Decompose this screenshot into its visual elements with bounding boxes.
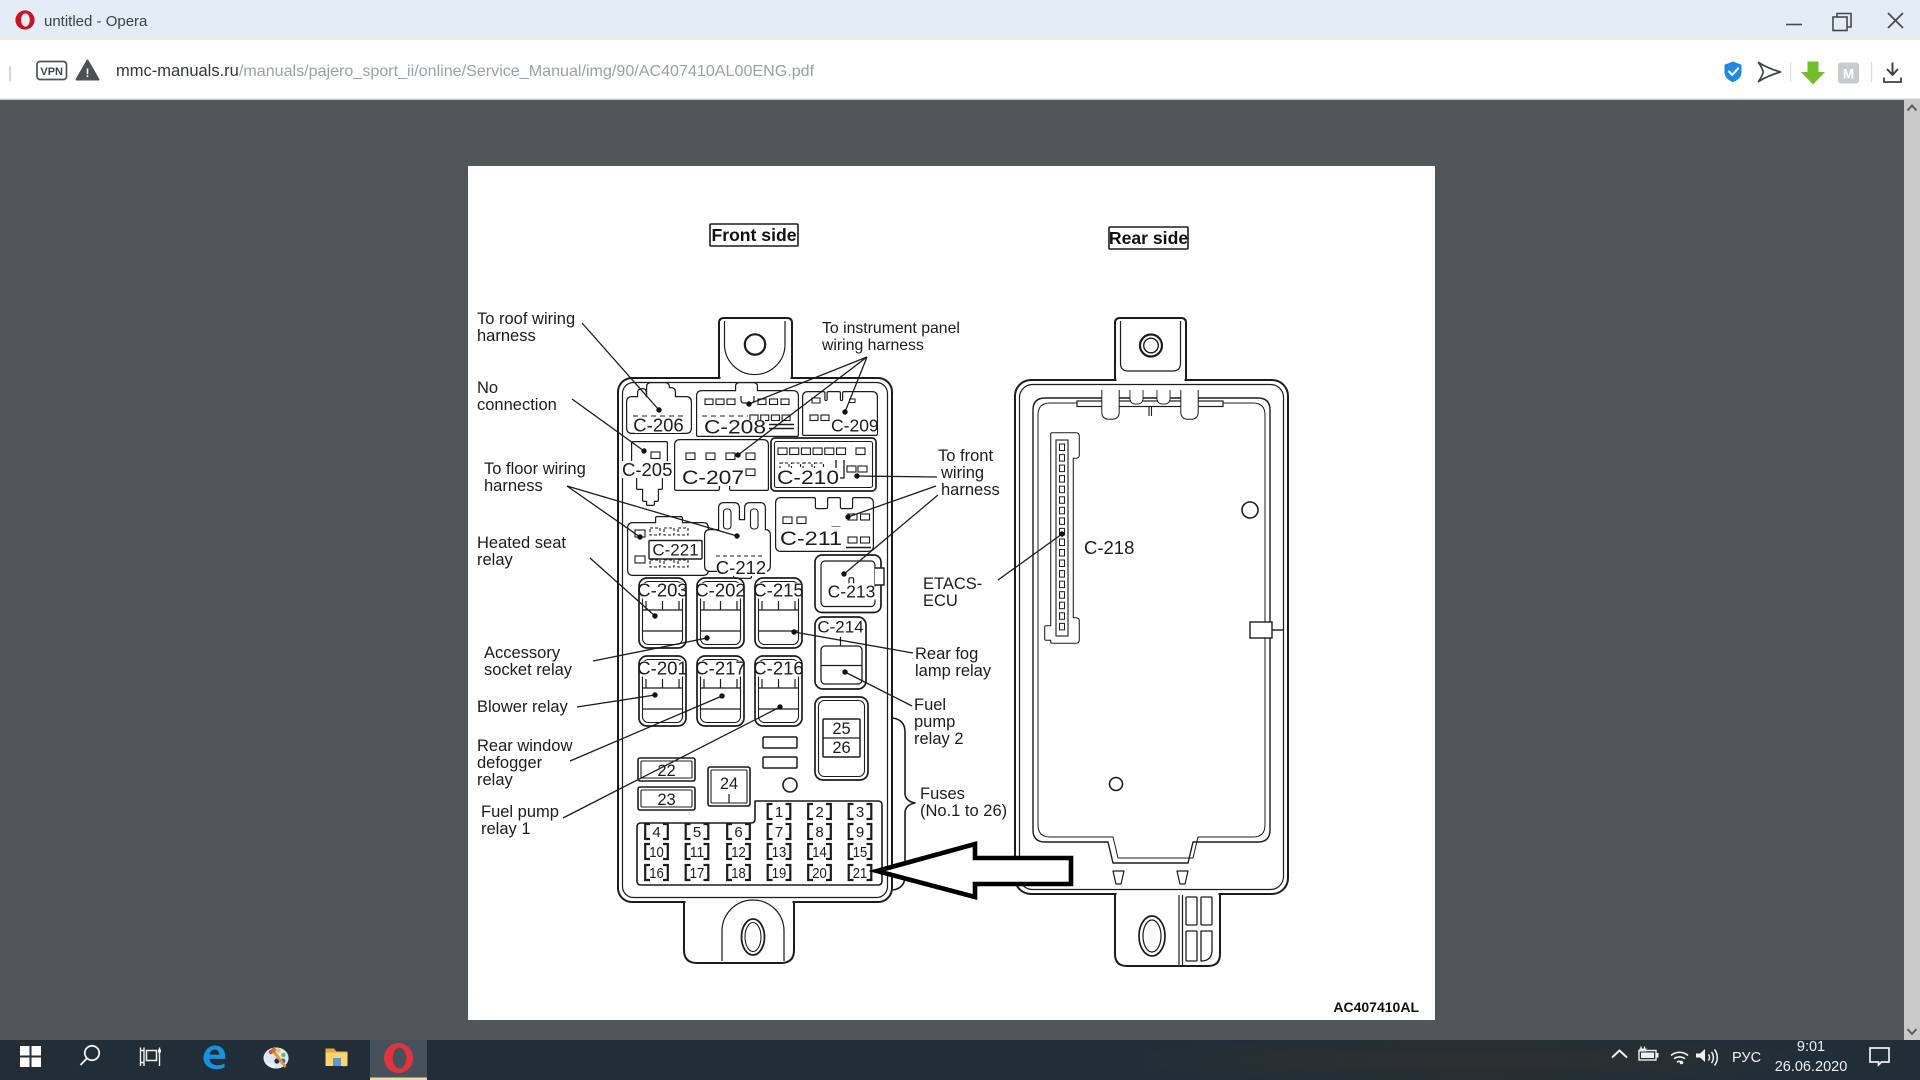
svg-text:25: 25: [832, 720, 850, 738]
svg-text:23: 23: [657, 791, 675, 809]
svg-text:pump: pump: [914, 713, 955, 731]
svg-text:mmc-manuals.ru/manuals/pajero_: mmc-manuals.ru/manuals/pajero_sport_ii/o…: [116, 62, 815, 80]
svg-text:20: 20: [812, 865, 827, 882]
svg-text:defogger: defogger: [477, 754, 543, 772]
svg-text:C-210: C-210: [777, 467, 839, 489]
svg-text:C-212: C-212: [716, 557, 766, 578]
svg-text:C-217: C-217: [695, 658, 745, 679]
svg-text:harness: harness: [477, 327, 536, 345]
svg-text:24: 24: [720, 775, 738, 793]
svg-text:C-208: C-208: [704, 417, 766, 439]
svg-text:lamp relay: lamp relay: [915, 662, 992, 680]
svg-text:No: No: [477, 379, 498, 397]
svg-text:To front: To front: [938, 447, 993, 465]
svg-text:2: 2: [815, 804, 823, 821]
svg-text:8: 8: [815, 824, 823, 841]
svg-text:VPN: VPN: [40, 66, 63, 78]
svg-text:wiring: wiring: [940, 464, 984, 482]
svg-text:To roof wiring: To roof wiring: [477, 310, 575, 328]
svg-text:C-211: C-211: [780, 528, 842, 550]
svg-text:(No.1 to 26): (No.1 to 26): [920, 802, 1007, 820]
svg-text:C-201: C-201: [637, 658, 687, 679]
svg-text:17: 17: [690, 865, 705, 882]
svg-text:C-215: C-215: [753, 580, 803, 601]
svg-text:Fuses: Fuses: [920, 785, 965, 803]
svg-text:relay: relay: [477, 771, 514, 789]
svg-text:Front side: Front side: [711, 225, 796, 245]
svg-text:11: 11: [690, 844, 705, 861]
svg-text:Heated seat: Heated seat: [477, 534, 566, 552]
svg-text:C-213: C-213: [828, 582, 876, 602]
svg-text:Fuel: Fuel: [914, 696, 946, 714]
svg-text:Rear fog: Rear fog: [915, 645, 978, 663]
svg-text:12: 12: [731, 844, 746, 861]
svg-text:relay: relay: [477, 551, 514, 569]
svg-text:1: 1: [775, 804, 783, 821]
svg-text:C-214: C-214: [817, 618, 863, 637]
svg-text:harness: harness: [941, 481, 1000, 499]
svg-text:untitled - Opera: untitled - Opera: [44, 13, 148, 30]
svg-text:C-203: C-203: [637, 580, 687, 601]
svg-text:relay 1: relay 1: [481, 820, 531, 838]
svg-text:РУС: РУС: [1732, 1050, 1761, 1066]
svg-text:6: 6: [734, 824, 742, 841]
svg-text:9:01: 9:01: [1797, 1039, 1825, 1055]
svg-text:C-205: C-205: [622, 459, 672, 480]
svg-text:26: 26: [832, 739, 850, 757]
svg-text:13: 13: [772, 844, 787, 861]
svg-text:C-216: C-216: [753, 658, 803, 679]
svg-text:9: 9: [856, 824, 864, 841]
svg-text:ETACS-: ETACS-: [923, 575, 982, 593]
svg-text:26.06.2020: 26.06.2020: [1775, 1059, 1848, 1075]
svg-text:harness: harness: [484, 477, 543, 495]
svg-text:3: 3: [856, 804, 864, 821]
svg-text:C-218: C-218: [1084, 537, 1134, 558]
svg-text:Accessory: Accessory: [484, 644, 561, 662]
svg-text:socket relay: socket relay: [484, 661, 573, 679]
svg-text:C-221: C-221: [652, 541, 698, 560]
svg-text:Rear window: Rear window: [477, 737, 572, 755]
svg-text:C-207: C-207: [682, 467, 744, 489]
svg-text:18: 18: [731, 865, 746, 882]
svg-text:14: 14: [812, 844, 827, 861]
svg-text:!: !: [86, 66, 90, 80]
svg-text:C-206: C-206: [633, 415, 683, 436]
svg-text:To floor wiring: To floor wiring: [484, 460, 586, 478]
svg-text:Fuel pump: Fuel pump: [481, 803, 559, 821]
svg-text:5: 5: [693, 824, 701, 841]
svg-text:10: 10: [649, 844, 664, 861]
svg-text:7: 7: [775, 824, 783, 841]
svg-text:19: 19: [772, 865, 787, 882]
svg-text:wiring harness: wiring harness: [821, 337, 924, 354]
svg-text:C-209: C-209: [831, 416, 879, 436]
svg-text:To instrument panel: To instrument panel: [822, 320, 960, 337]
svg-text:Rear side: Rear side: [1109, 228, 1188, 248]
svg-text:15: 15: [853, 844, 868, 861]
svg-text:Blower relay: Blower relay: [477, 698, 569, 716]
svg-text:M: M: [1843, 67, 1854, 82]
svg-text:21: 21: [853, 865, 868, 882]
svg-text:relay 2: relay 2: [914, 730, 964, 748]
svg-text:4: 4: [652, 824, 660, 841]
svg-text:16: 16: [649, 865, 664, 882]
svg-text:connection: connection: [477, 396, 557, 414]
svg-text:AC407410AL: AC407410AL: [1333, 999, 1419, 1015]
svg-text:ECU: ECU: [923, 592, 958, 610]
svg-text:C-202: C-202: [695, 580, 745, 601]
